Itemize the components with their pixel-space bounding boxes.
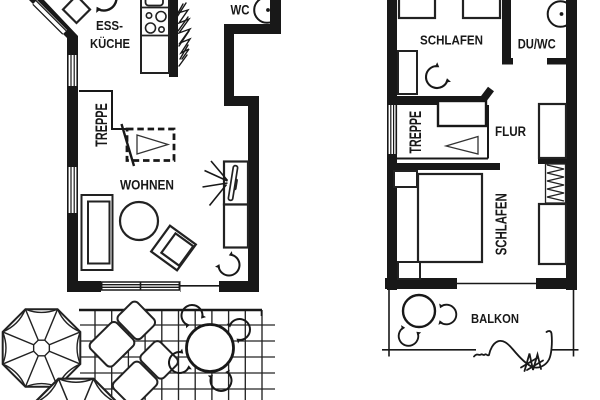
svg-text:SCHLAFEN: SCHLAFEN	[494, 193, 511, 255]
svg-text:SCHLAFEN: SCHLAFEN	[420, 33, 483, 48]
svg-text:TREPPE: TREPPE	[93, 103, 111, 147]
svg-text:FLUR: FLUR	[495, 124, 526, 139]
svg-text:KÜCHE: KÜCHE	[90, 36, 130, 51]
svg-text:WC: WC	[231, 2, 250, 18]
svg-text:WOHNEN: WOHNEN	[120, 177, 174, 193]
svg-text:ESS-: ESS-	[96, 18, 123, 33]
svg-text:BALKON: BALKON	[471, 311, 519, 326]
svg-text:DU/WC: DU/WC	[518, 36, 556, 52]
svg-text:TREPPE: TREPPE	[407, 111, 425, 154]
